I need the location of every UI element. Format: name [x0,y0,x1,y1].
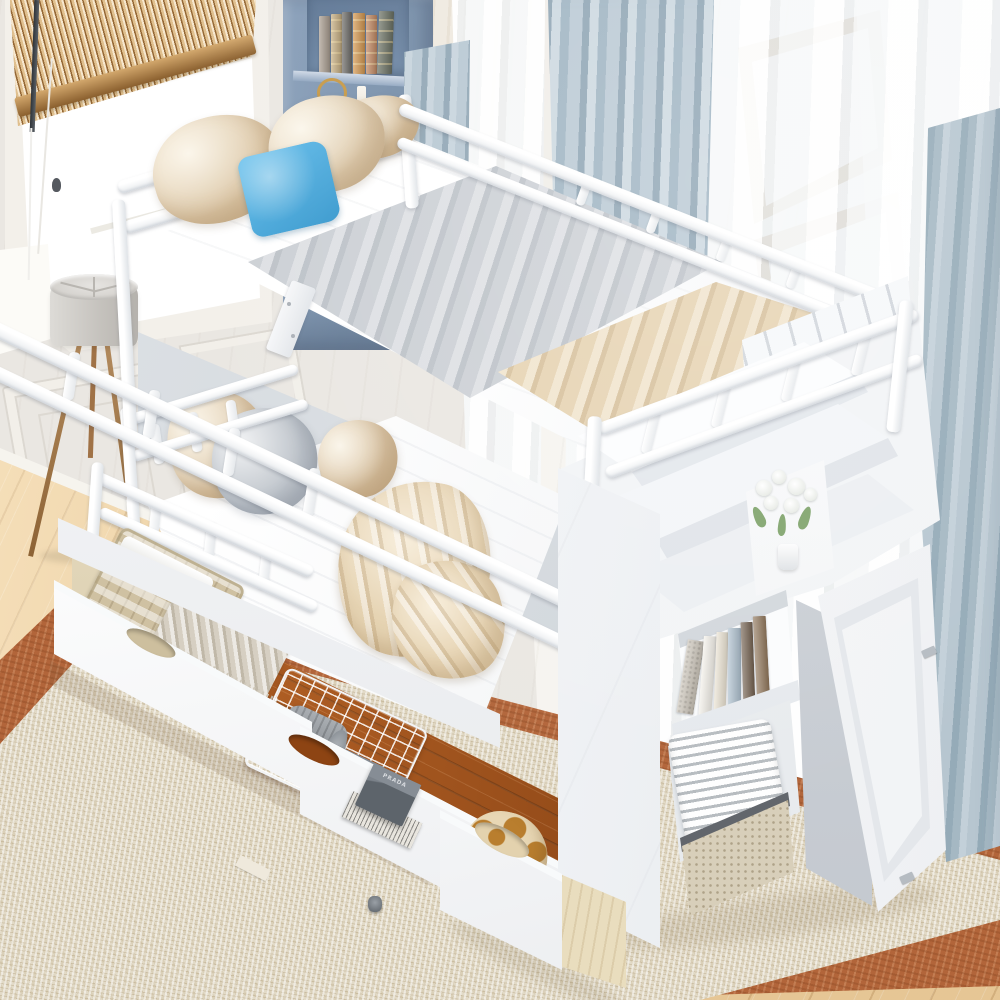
book-spine [331,14,342,74]
flower [784,498,799,513]
screw [291,334,295,338]
screw [287,302,291,306]
flower [764,496,778,510]
lamp-shade-seam [93,277,95,297]
book-spine [353,13,365,74]
flower-bouquet [748,466,832,566]
caster-wheel [368,896,382,912]
vase [778,544,798,570]
bedroom-product-photo: PRADA [0,0,1000,1000]
book-spine [728,628,741,712]
flower [772,470,786,484]
leaf [750,505,768,529]
flower [756,480,772,496]
flower [804,488,817,501]
book-spine [319,16,330,74]
book-spine [377,11,394,74]
flower [788,478,805,495]
leaf [777,514,787,537]
book-spine [342,12,352,74]
blinds-cord-pull [52,178,61,192]
leaf [796,505,814,531]
book-spine [366,15,377,74]
